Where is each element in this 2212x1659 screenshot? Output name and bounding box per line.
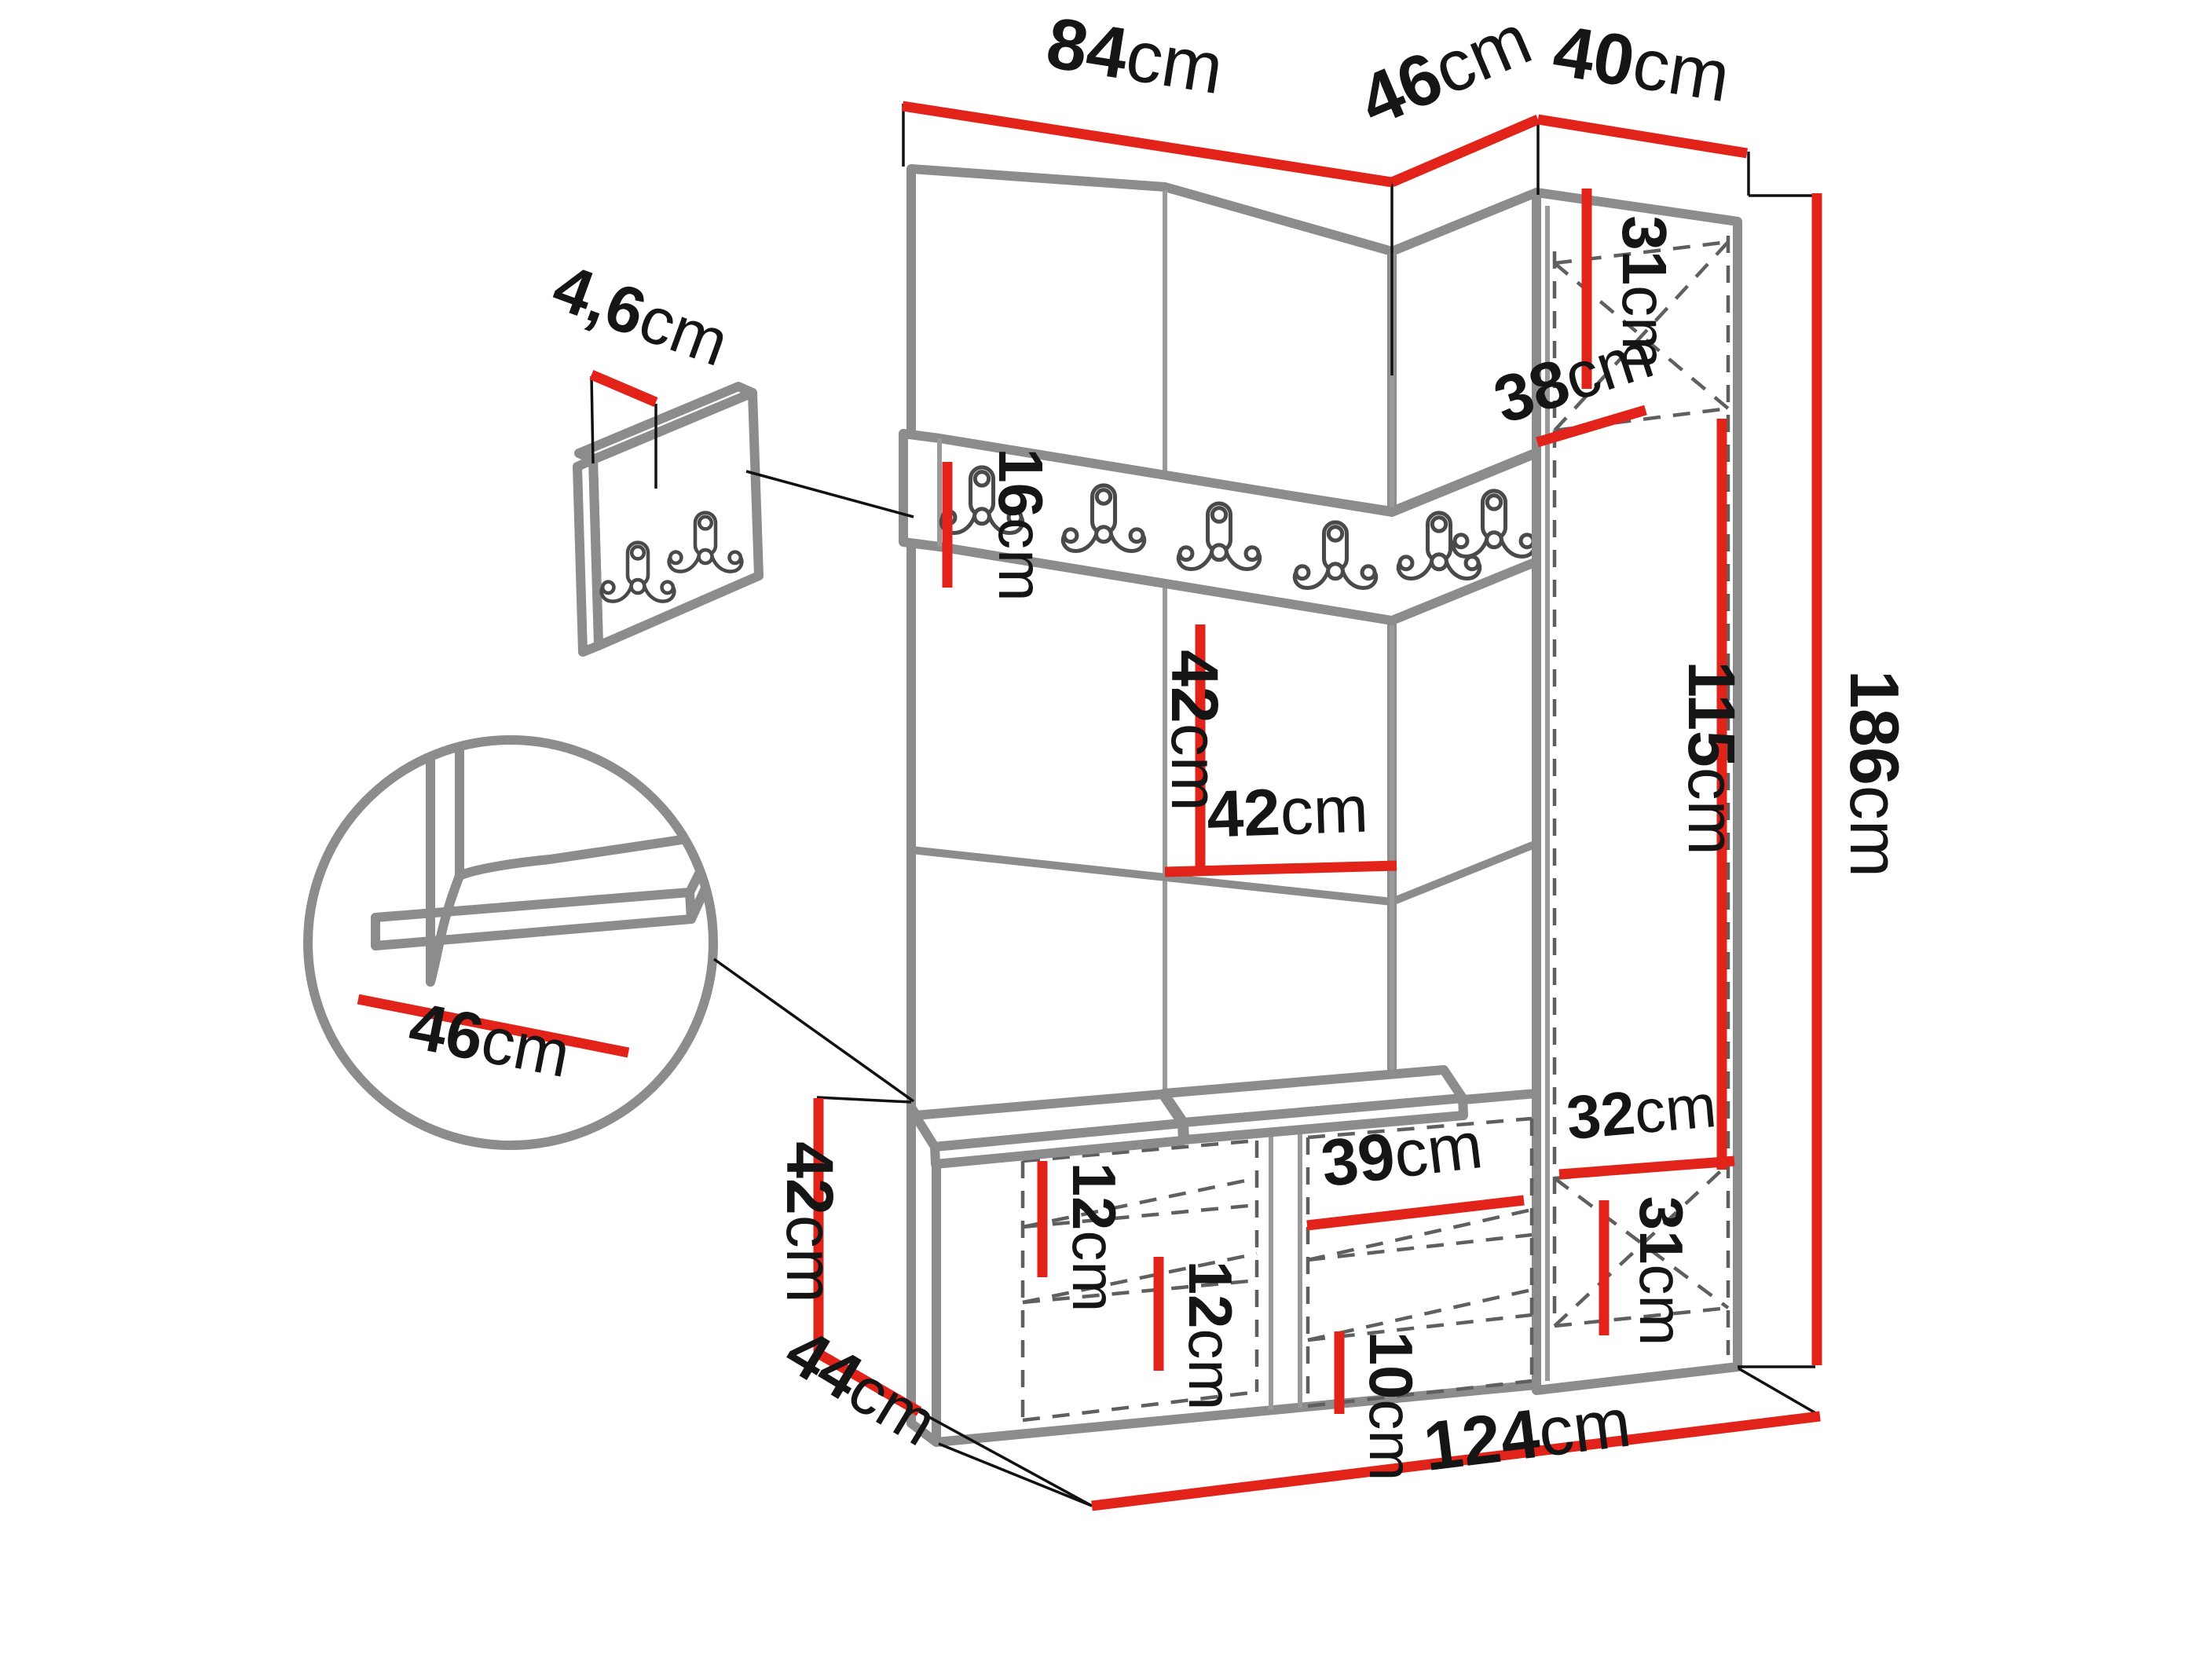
dimension-label-32cm: 32cm	[1564, 1071, 1719, 1152]
dimension-label-16cm: 16cm	[986, 448, 1056, 602]
dimension-label-186cm: 186cm	[1836, 670, 1914, 877]
dimension-line-4-6cm	[591, 375, 656, 402]
dimension-label-42cm-bench: 42cm	[773, 1141, 847, 1302]
dimension-label-10cm: 10cm	[1357, 1331, 1426, 1481]
dimension-label-12cm-a: 12cm	[1060, 1163, 1129, 1313]
dimension-line-42cm-horizontal	[1165, 866, 1397, 872]
bench-corner-detail-circle	[308, 731, 719, 1145]
pointer-line-hook-panel	[746, 471, 914, 517]
dimension-label-46cm-top: 46cm	[1348, 0, 1542, 141]
pointer-line-detail-circle	[714, 959, 914, 1101]
dimension-label-42cm-horizontal: 42cm	[1206, 771, 1370, 851]
dimension-label-31cm-bottom: 31cm	[1627, 1196, 1696, 1346]
hook-panel-side	[577, 460, 599, 652]
dimension-line-46cm-top	[1392, 119, 1538, 182]
padded-wall-left	[911, 169, 1392, 1155]
dimension-label-115cm: 115cm	[1675, 661, 1749, 855]
diagram-stage: 84cm 46cm 40cm 4,6cm 16cm 31cm 38cm 42cm…	[0, 0, 2212, 1659]
dimension-line-40cm	[1538, 119, 1747, 153]
dimension-label-12cm-b: 12cm	[1176, 1261, 1245, 1411]
dimension-label-124cm: 124cm	[1419, 1383, 1635, 1485]
hook-panel-detail	[577, 386, 759, 652]
padded-wall-corner	[1392, 192, 1536, 1155]
dimension-label-4-6cm: 4,6cm	[544, 249, 738, 380]
dimension-label-40cm: 40cm	[1548, 10, 1735, 117]
hook-panel-front	[593, 393, 759, 646]
furniture-dimension-diagram: 84cm 46cm 40cm 4,6cm 16cm 31cm 38cm 42cm…	[0, 0, 2212, 1659]
dimension-label-84cm: 84cm	[1042, 2, 1229, 109]
